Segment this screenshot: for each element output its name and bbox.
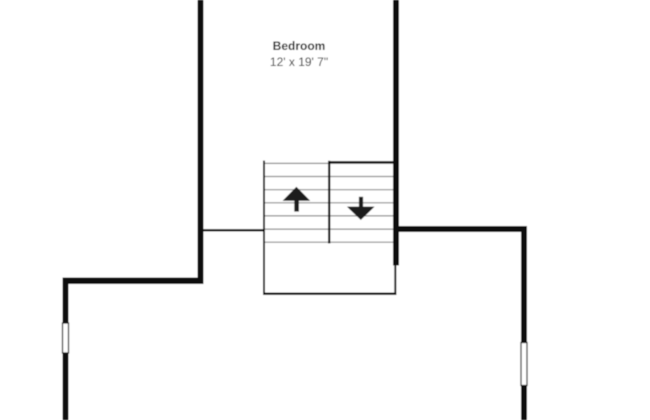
svg-text:12' x 19' 7": 12' x 19' 7" [270, 55, 328, 69]
svg-text:Bedroom: Bedroom [273, 39, 326, 53]
